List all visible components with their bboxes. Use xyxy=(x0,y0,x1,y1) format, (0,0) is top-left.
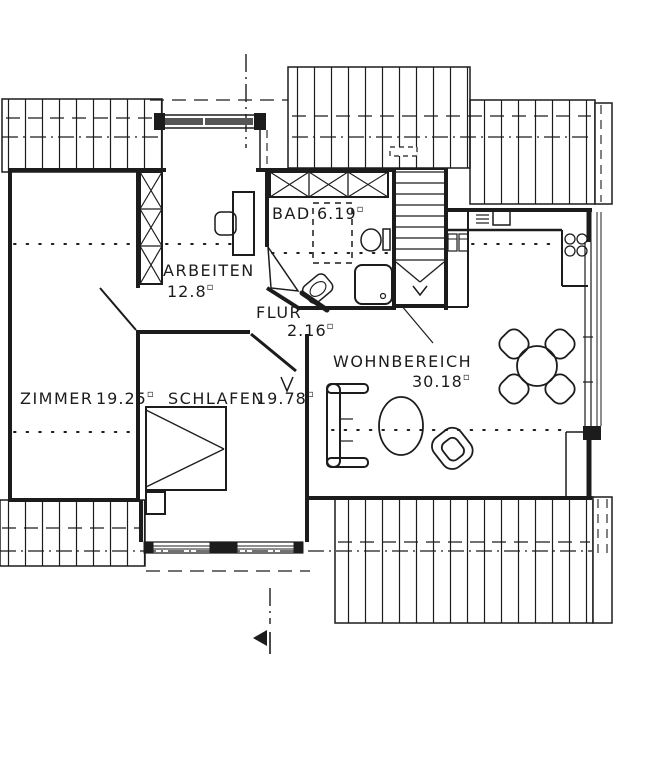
window-post xyxy=(254,113,266,130)
square-meter-icon: ▫ xyxy=(207,282,215,293)
toilet-icon xyxy=(361,229,390,251)
window-post xyxy=(144,542,153,553)
dining-chair xyxy=(496,326,533,363)
floor-plan-sheet: ZIMMER 19.25▫ SCHLAFEN 19.78▫ ARBEITEN 1… xyxy=(0,0,650,781)
wardrobe xyxy=(270,172,388,197)
kitchen xyxy=(446,209,588,307)
room-label-wohnbereich: WOHNBEREICH 30.18▫ xyxy=(333,352,472,391)
schlafen-window xyxy=(144,542,303,553)
chimney-outline-dashed xyxy=(390,147,417,156)
window-post xyxy=(294,542,303,553)
window-glass xyxy=(164,118,203,125)
roof-hatch-top-center xyxy=(288,67,470,168)
roof-hatch-bottom-right xyxy=(335,497,612,623)
room-name: FLUR xyxy=(256,303,302,322)
room-name: SCHLAFEN xyxy=(168,389,265,408)
room-name: ARBEITEN xyxy=(163,261,255,280)
washbasin-icon xyxy=(300,272,335,306)
living-room-window-wall xyxy=(566,212,601,497)
room-name: ZIMMER xyxy=(20,389,94,408)
room-area: 2.16▫ xyxy=(287,321,334,340)
section-line xyxy=(246,54,270,654)
coffee-table xyxy=(379,397,423,455)
window-glass xyxy=(205,118,253,125)
room-label-schlafen: SCHLAFEN 19.78▫ xyxy=(168,389,315,408)
square-meter-icon: ▫ xyxy=(463,372,471,383)
floor-plan-drawing: ZIMMER 19.25▫ SCHLAFEN 19.78▫ ARBEITEN 1… xyxy=(0,0,650,781)
nightstand xyxy=(146,492,165,514)
room-name: WOHNBEREICH xyxy=(333,352,472,371)
kitchen-right-counter xyxy=(562,230,588,286)
wall-post xyxy=(583,426,601,440)
room-area: 19.25▫ xyxy=(96,389,155,408)
appliance-icon xyxy=(448,234,457,251)
stove-burners-icon xyxy=(565,234,587,256)
square-meter-icon: ▫ xyxy=(147,389,155,400)
window-post xyxy=(154,113,165,130)
section-arrow-icon xyxy=(253,630,267,646)
label-leader-line xyxy=(401,305,433,343)
staircase xyxy=(394,169,446,295)
room-area: 19.78▫ xyxy=(256,389,315,408)
room-label-zimmer: ZIMMER 19.25▫ xyxy=(20,389,155,408)
chimney xyxy=(140,172,162,284)
armchair xyxy=(428,423,478,473)
walls xyxy=(8,168,592,542)
dining-chair xyxy=(496,371,533,408)
dormer-window-top xyxy=(154,113,266,168)
room-label-arbeiten: ARBEITEN 12.8▫ xyxy=(163,261,255,301)
eaves-edge-strip xyxy=(595,103,612,204)
stair-direction-arrow xyxy=(413,286,427,295)
arbeiten-furniture xyxy=(215,192,254,255)
dining-chair xyxy=(542,371,579,408)
bathroom-fixtures xyxy=(270,172,392,306)
room-name: BAD xyxy=(272,204,311,223)
dining-set xyxy=(496,326,579,408)
room-area: 30.18▫ xyxy=(412,372,471,391)
square-meter-icon: ▫ xyxy=(307,389,315,400)
square-meter-icon: ▫ xyxy=(357,204,365,215)
dining-chair xyxy=(542,326,579,363)
bed xyxy=(146,407,226,490)
eaves-edge-strip xyxy=(593,497,612,623)
room-area: 6.19▫ xyxy=(317,204,364,223)
window-post xyxy=(210,542,237,553)
sofa xyxy=(327,384,368,467)
appliance-icon xyxy=(459,234,468,251)
kitchen-left-counter xyxy=(446,212,468,307)
room-area: 12.8▫ xyxy=(167,282,214,301)
roof-hatch-bottom-left xyxy=(0,500,145,566)
shower-tray-icon xyxy=(355,265,392,304)
roof-hatch-top-left xyxy=(2,99,162,172)
room-label-bad: BAD 6.19▫ xyxy=(272,204,364,223)
square-meter-icon: ▫ xyxy=(327,321,335,332)
zimmer-door-leaf xyxy=(100,288,136,330)
